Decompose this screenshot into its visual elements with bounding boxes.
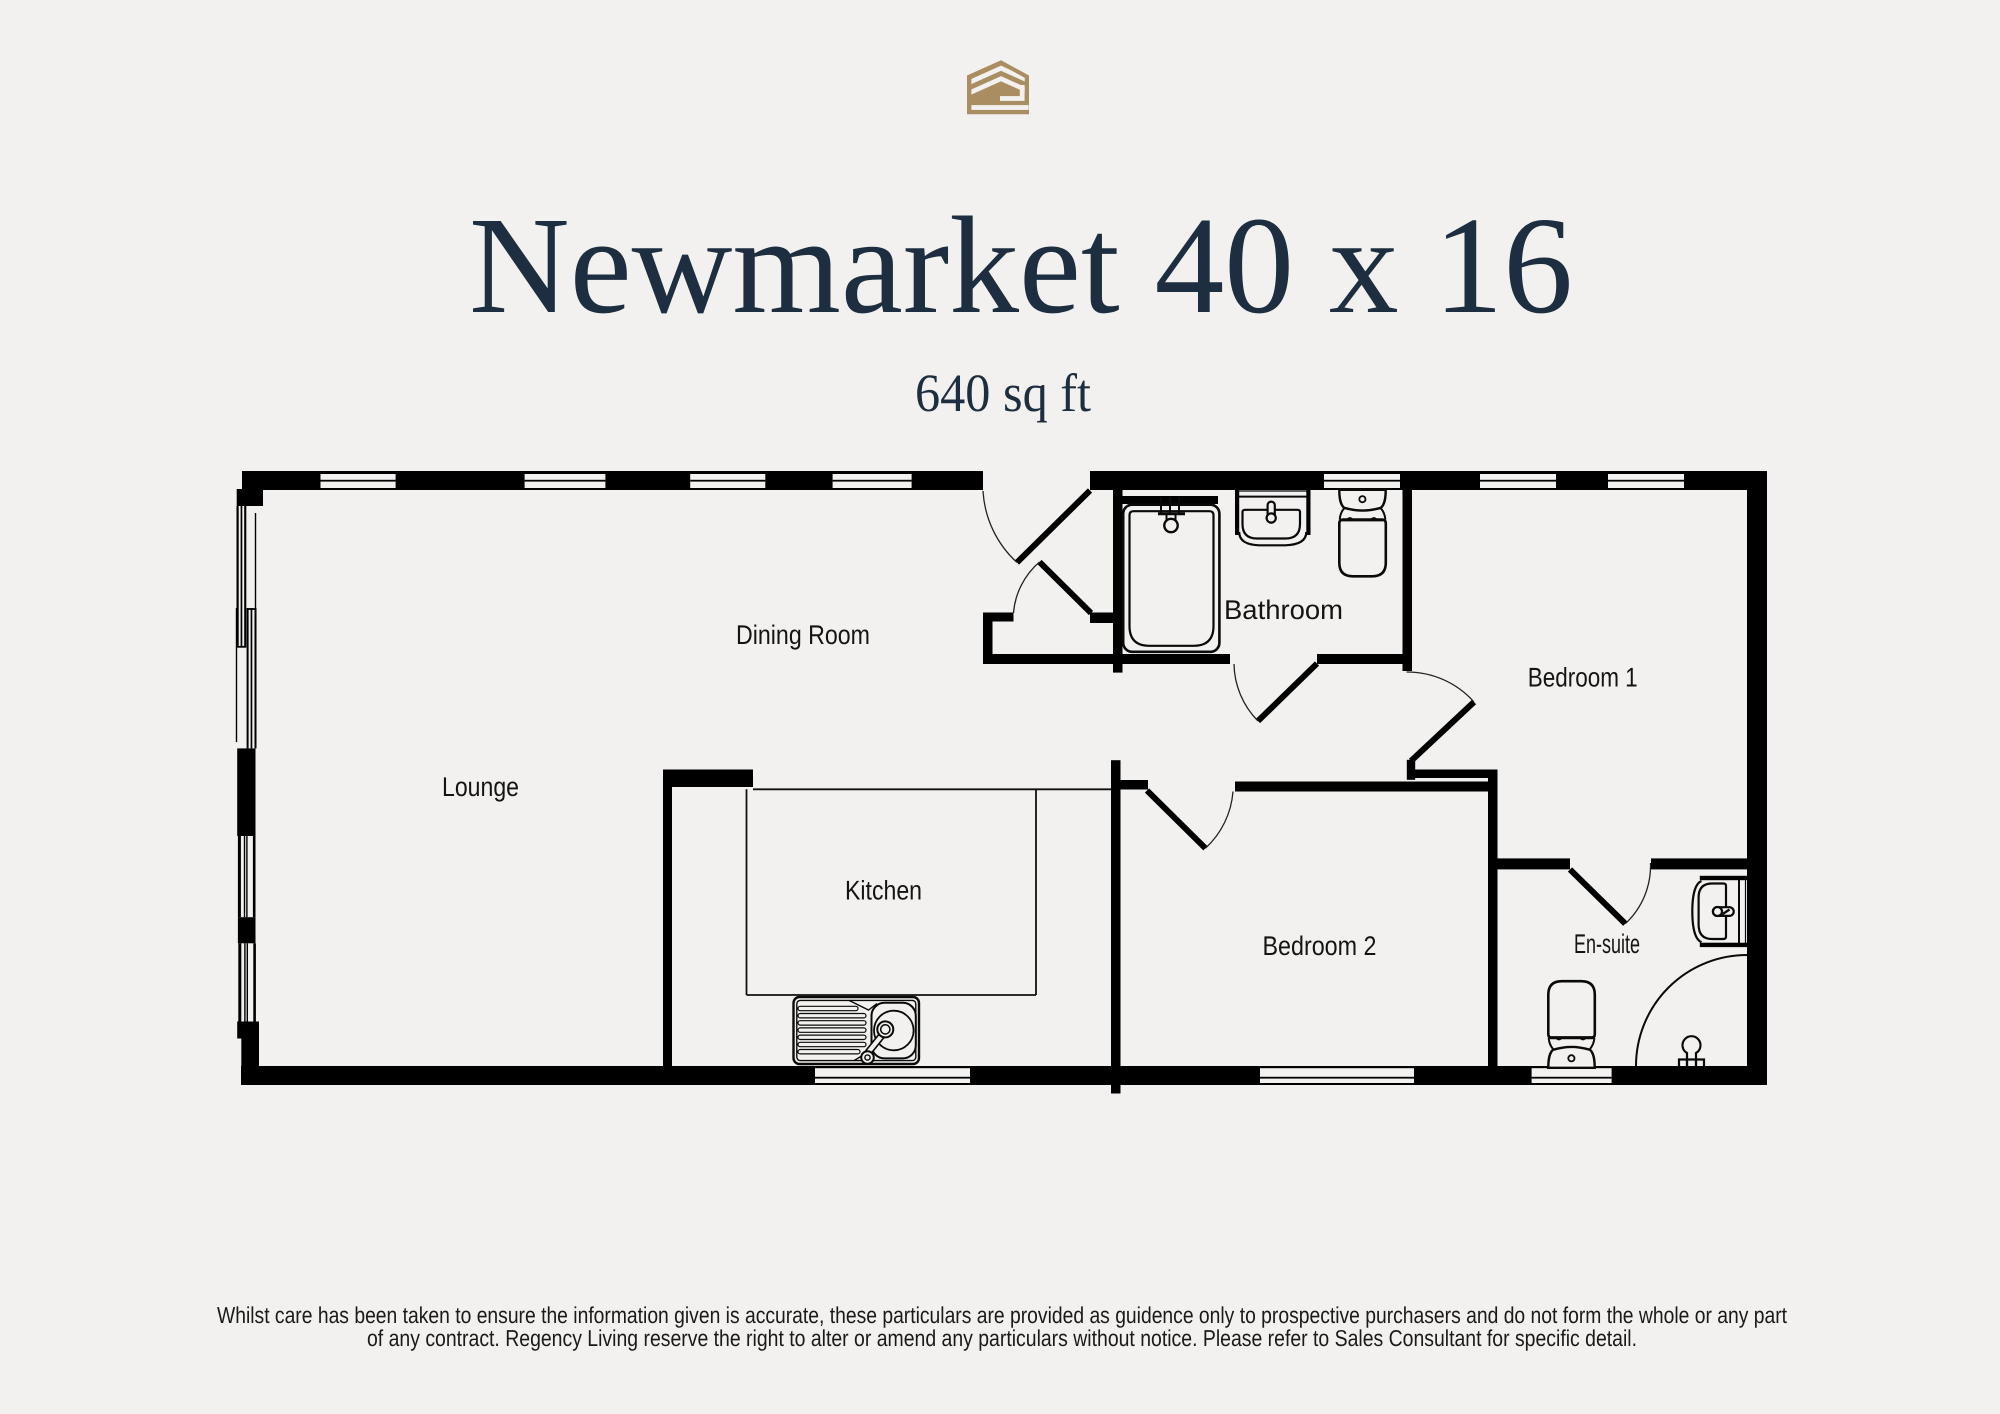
svg-text:Bathroom: Bathroom: [1224, 595, 1343, 625]
svg-text:Bedroom 2: Bedroom 2: [1263, 931, 1377, 961]
svg-text:Kitchen: Kitchen: [845, 876, 922, 906]
svg-text:Lounge: Lounge: [442, 772, 519, 802]
svg-text:En-suite: En-suite: [1574, 929, 1640, 959]
svg-text:640 sq ft: 640 sq ft: [915, 363, 1091, 423]
svg-text:Newmarket 40 x 16: Newmarket 40 x 16: [469, 189, 1573, 343]
svg-text:Bedroom 1: Bedroom 1: [1528, 663, 1638, 693]
svg-text:Dining Room: Dining Room: [736, 620, 870, 650]
svg-text:of any contract. Regency Livin: of any contract. Regency Living reserve …: [367, 1325, 1637, 1351]
